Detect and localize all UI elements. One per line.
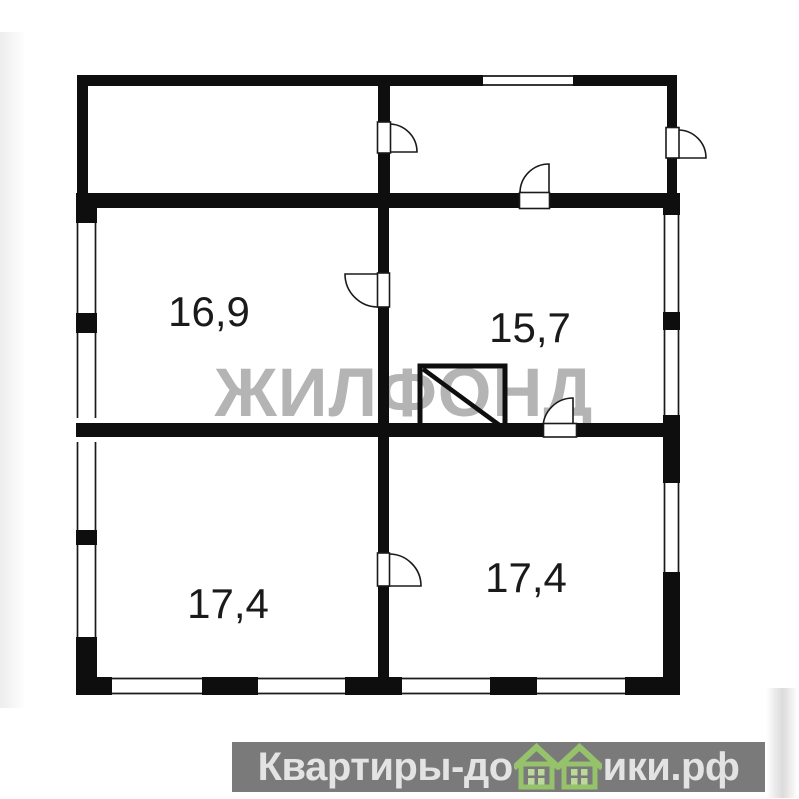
houses-icon [514,743,602,791]
brand-watermark-bar: Квартиры-до ики.рф [232,742,765,792]
agency-watermark-text: ЖИЛФОНД [214,354,594,431]
room-label-top-left: 16,9 [168,288,250,335]
room-label-bottom-left: 17,4 [187,580,269,627]
room-label-top-right: 15,7 [489,304,571,351]
door-leaf-room2-room4 [544,424,577,438]
brand-suffix: ики.рф [603,742,740,792]
door-arc-room1-room2 [345,274,378,307]
door-leaf-room2-veranda [520,193,550,209]
room-label-bottom-right: 17,4 [485,554,567,601]
door-leaf-room1-room2 [378,273,390,307]
door-arc-veranda-divider [389,124,417,152]
door-arc-room3-room4 [389,554,421,586]
floor-plan-svg: ЖИЛФОНД [0,0,799,799]
door-leaf-veranda-exit [666,128,679,159]
room-labels: 16,9 15,7 17,4 17,4 [168,288,571,627]
floor-plan-page: ЖИЛФОНД [0,0,799,799]
brand-prefix: Квартиры-до [258,742,513,792]
door-arc-veranda-exit [678,130,706,158]
door-leaf-room3-room4 [378,553,390,586]
door-leaf-veranda-divider [378,122,391,153]
door-arc-room2-veranda [520,164,549,193]
